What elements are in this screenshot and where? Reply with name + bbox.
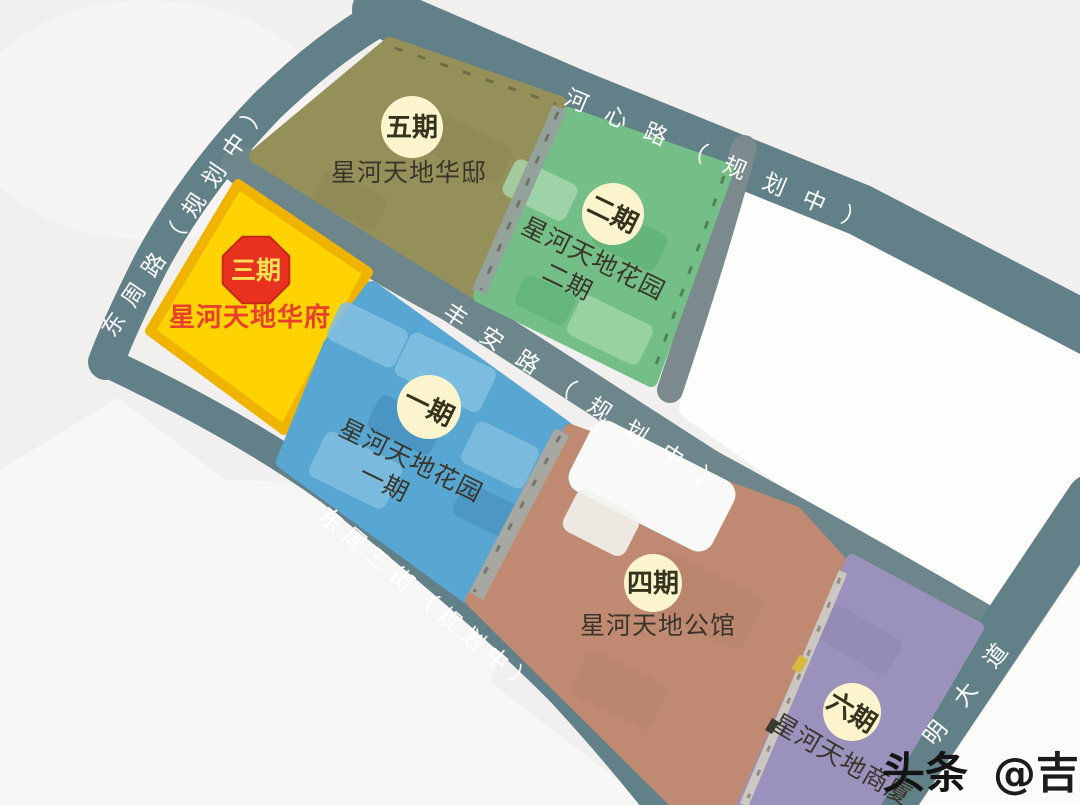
- svg-text:头条 @吉屋网: 头条 @吉屋网: [882, 749, 1080, 799]
- watermark: 头条 @吉屋网: [882, 749, 1080, 799]
- phase4-badge-label: 四期: [627, 569, 679, 599]
- site-plan-map: 河心路（规划中） 东周路（规划中） 丰安路（规划中） 东周三街（规划中） 明大道…: [0, 0, 1080, 805]
- watermark-handle: @吉屋网: [993, 749, 1080, 799]
- phase4-caption: 星河天地公馆: [580, 611, 736, 640]
- watermark-prefix: 头条: [882, 749, 968, 799]
- phase5-badge-label: 五期: [386, 113, 438, 143]
- phase5-caption: 星河天地华邸: [331, 158, 487, 187]
- phase3-badge-label: 三期: [231, 256, 281, 285]
- phase3-caption: 星河天地华府: [169, 302, 331, 333]
